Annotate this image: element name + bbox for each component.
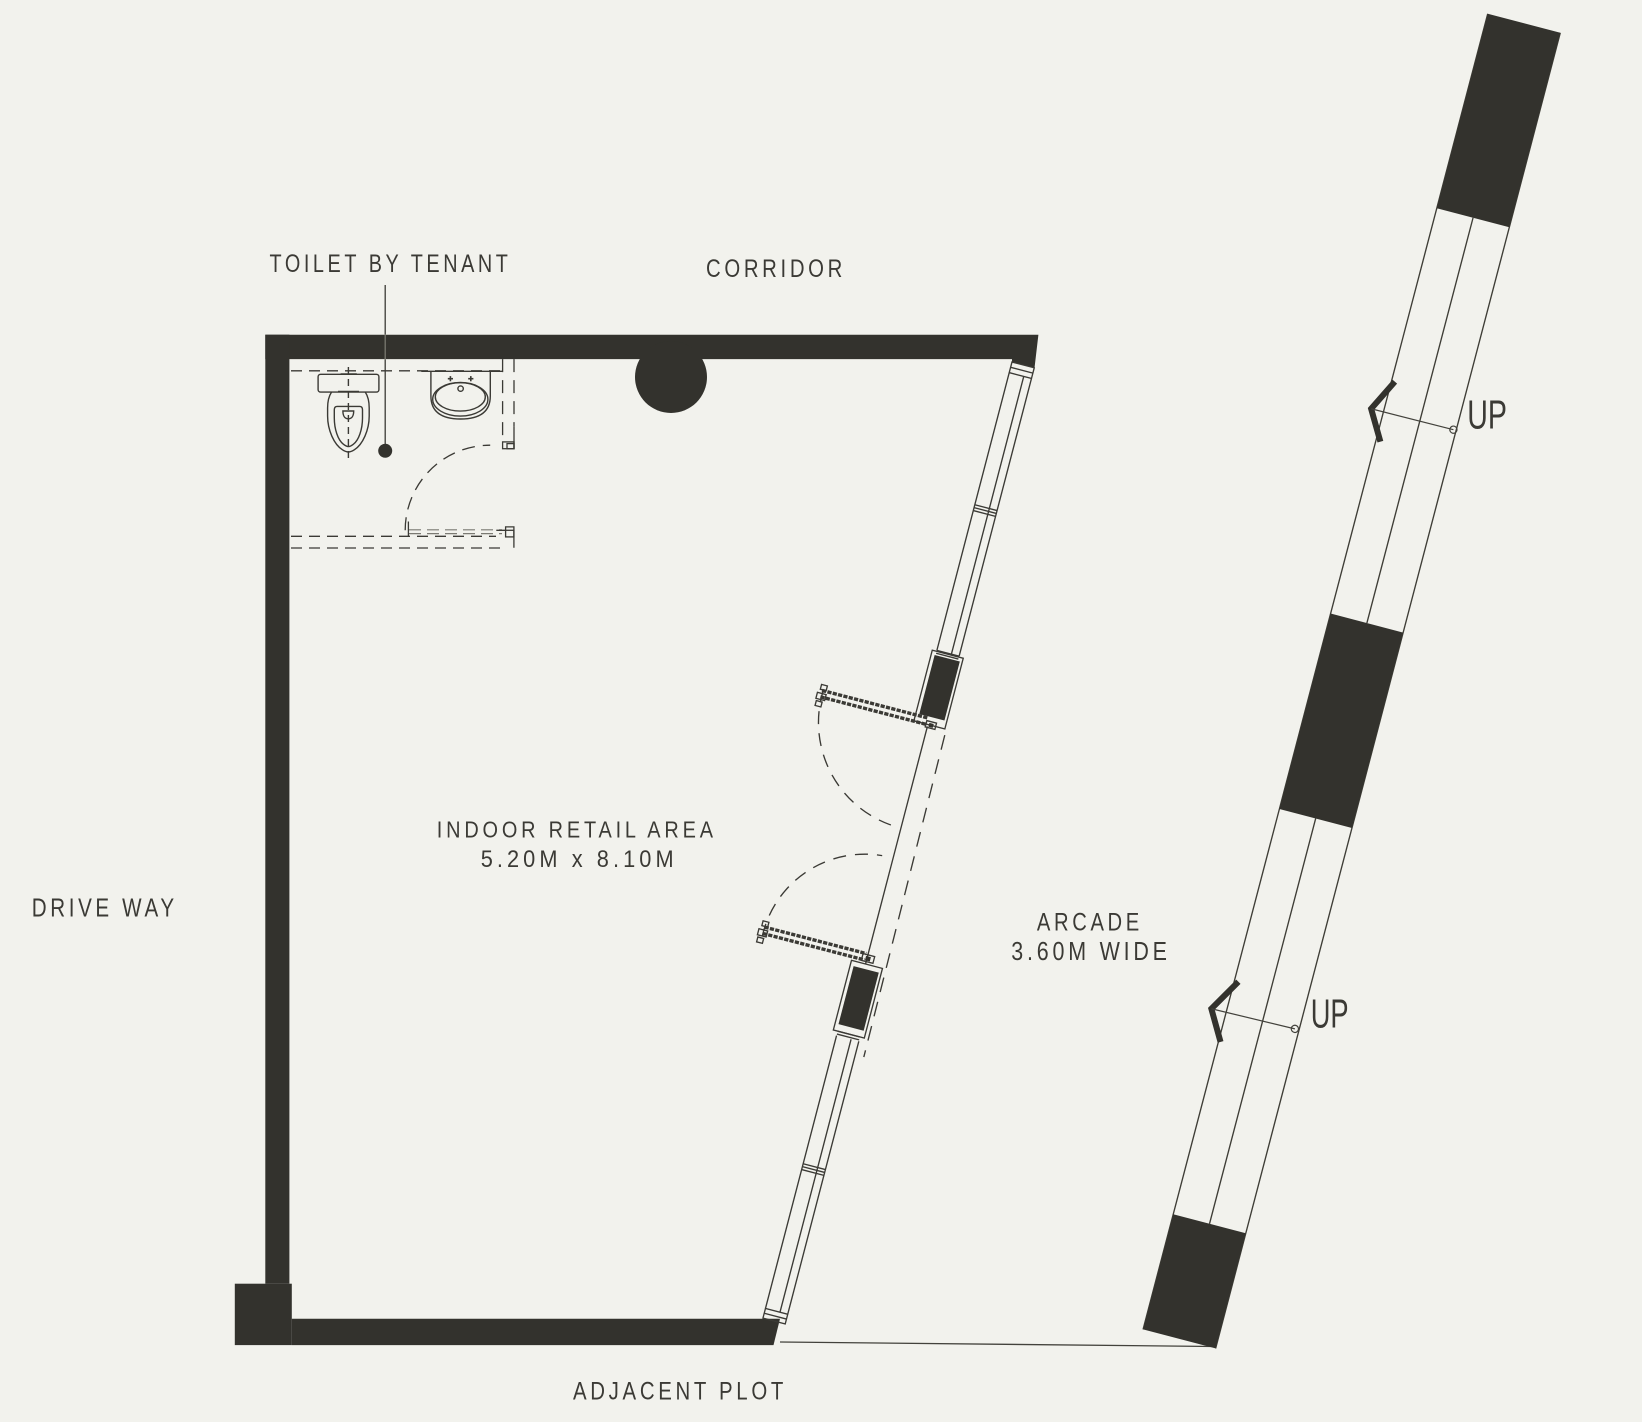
svg-text:UP: UP (1467, 391, 1507, 437)
svg-text:DRIVE WAY: DRIVE WAY (32, 895, 178, 923)
svg-text:UP: UP (1311, 991, 1349, 1037)
svg-text:ADJACENT PLOT: ADJACENT PLOT (573, 1378, 787, 1406)
svg-text:CORRIDOR: CORRIDOR (706, 255, 846, 283)
svg-text:3.60M WIDE: 3.60M WIDE (1011, 938, 1171, 966)
svg-text:ARCADE: ARCADE (1037, 908, 1143, 936)
svg-text:TOILET BY TENANT: TOILET BY TENANT (270, 250, 512, 278)
svg-text:5.20M x 8.10M: 5.20M x 8.10M (481, 846, 678, 873)
svg-text:INDOOR RETAIL AREA: INDOOR RETAIL AREA (437, 816, 717, 842)
